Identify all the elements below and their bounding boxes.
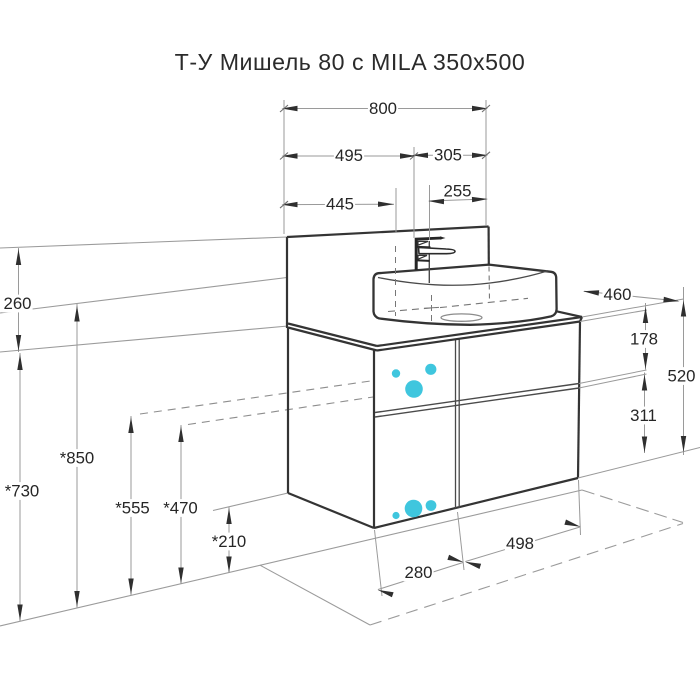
svg-text:311: 311	[630, 406, 657, 425]
svg-text:*555: *555	[115, 499, 150, 518]
svg-text:260: 260	[4, 294, 32, 313]
svg-text:*850: *850	[60, 449, 95, 468]
svg-text:460: 460	[604, 285, 632, 304]
svg-text:*210: *210	[212, 532, 247, 551]
svg-text:445: 445	[326, 194, 354, 213]
svg-text:495: 495	[335, 146, 363, 165]
svg-text:*730: *730	[5, 482, 40, 501]
svg-text:305: 305	[434, 145, 462, 164]
svg-text:280: 280	[405, 563, 433, 582]
svg-text:Т-У Мишель 80 с MILA 350x500: Т-У Мишель 80 с MILA 350x500	[175, 49, 526, 75]
svg-text:178: 178	[630, 330, 658, 349]
svg-text:800: 800	[369, 99, 397, 118]
svg-text:498: 498	[506, 534, 534, 553]
svg-text:*470: *470	[163, 499, 198, 518]
svg-text:255: 255	[444, 182, 472, 201]
svg-text:520: 520	[668, 367, 696, 386]
